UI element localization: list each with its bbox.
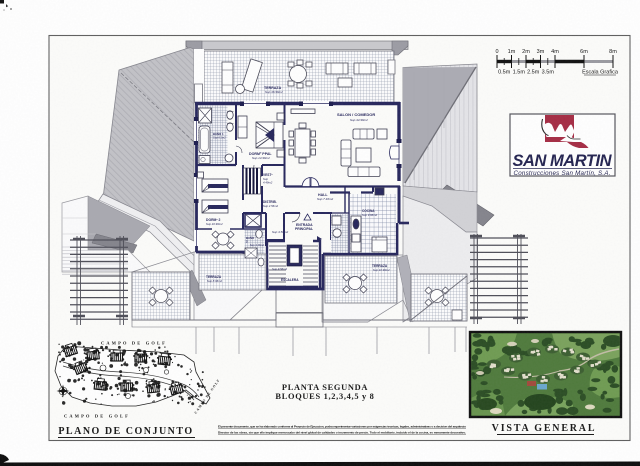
svg-text:VISTA GENERAL: VISTA GENERAL [492, 423, 597, 434]
svg-text:El presente documento, que se: El presente documento, que se ha elabora… [218, 425, 466, 429]
svg-text:PLANTA SEGUNDA: PLANTA SEGUNDA [282, 383, 368, 392]
svg-text:PLANO DE CONJUNTO: PLANO DE CONJUNTO [58, 426, 193, 437]
svg-text:BLOQUES 1,2,3,4,5 y 8: BLOQUES 1,2,3,4,5 y 8 [275, 392, 374, 401]
svg-text:Director de las obras, sin qu: Director de las obras, sin que ello impl… [218, 431, 466, 435]
